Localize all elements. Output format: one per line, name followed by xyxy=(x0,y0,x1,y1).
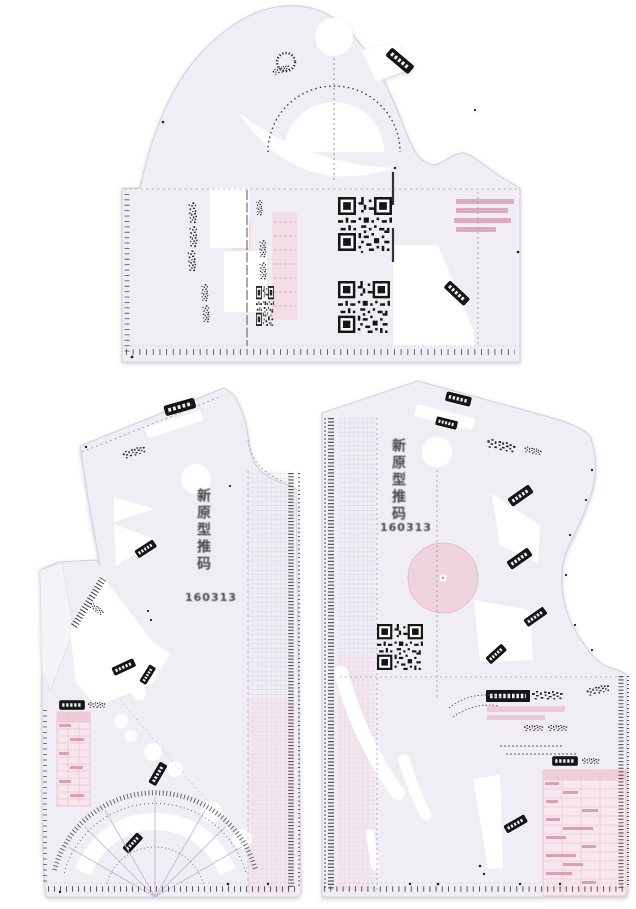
back-bodice-template xyxy=(322,381,628,897)
product-photo: 新原型推码 160313 新原型推码 160313 xyxy=(0,0,636,909)
label-chip xyxy=(60,701,85,710)
label-chip xyxy=(553,757,578,766)
front-bodice-template xyxy=(40,388,301,897)
top-ruler-template xyxy=(122,6,520,362)
size-table xyxy=(543,770,626,896)
grid-pink-tint xyxy=(248,700,292,893)
template-illustration xyxy=(0,0,636,909)
size-table xyxy=(57,712,90,806)
